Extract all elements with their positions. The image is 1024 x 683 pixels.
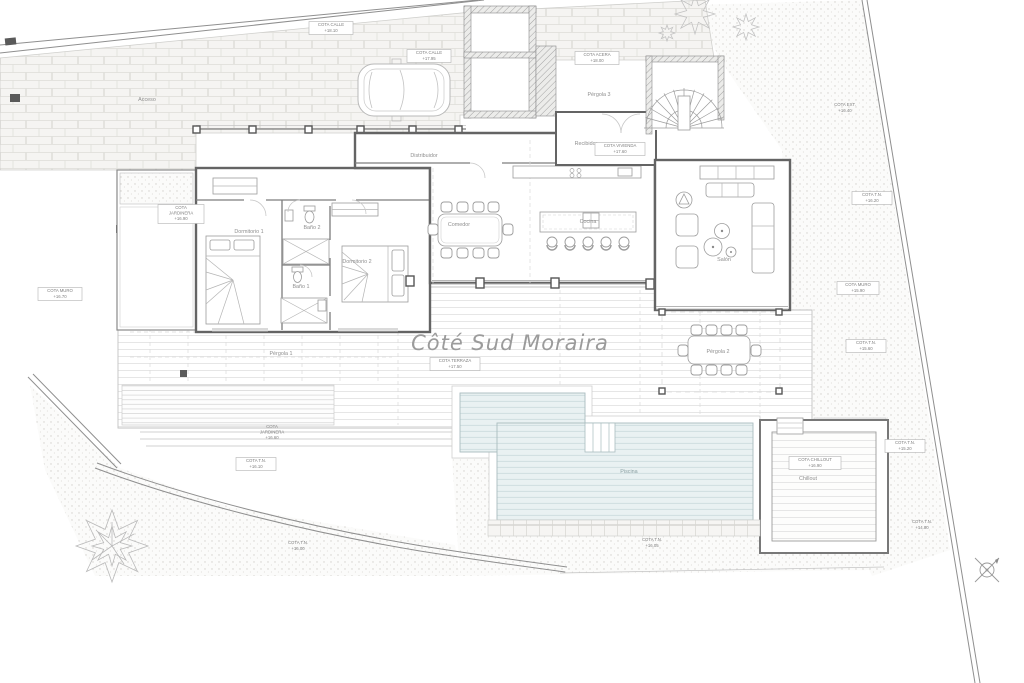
- svg-text:COTA: COTA: [175, 205, 187, 210]
- cota-muro-e: COTA MURO+15.90: [837, 282, 879, 295]
- kitchen-sink: [618, 168, 632, 176]
- cota-tn-e: COTA T.N.+16.20: [852, 192, 892, 205]
- room-label-bano2: Baño 2: [303, 225, 320, 231]
- north-arrow-icon: [975, 558, 999, 582]
- sink-1: [285, 210, 293, 221]
- room-label-dormitorio1: Dormitorio 1: [234, 229, 263, 235]
- room-label-salon: Salón: [717, 257, 731, 263]
- cota-tn-e2: COTA T.N.+15.60: [846, 340, 886, 353]
- planter-west: [117, 170, 196, 330]
- room-label-chillout: Chillout: [799, 476, 817, 482]
- media-cabinet: [700, 166, 774, 179]
- room-label-cocina: Cocina: [580, 219, 597, 225]
- floor-plan-canvas: Piscina Chillout: [0, 0, 1024, 683]
- ceiling-fan-icon: [676, 192, 692, 208]
- cota-tn-sw: COTA T.N.+16.10: [236, 458, 276, 471]
- room-label-recibidor: Recibidor: [575, 141, 598, 147]
- svg-text:+18.00: +18.00: [590, 58, 604, 63]
- svg-text:+16.90: +16.90: [174, 216, 188, 221]
- svg-text:+16.00: +16.00: [291, 546, 305, 551]
- cota-acera: COTA ACERA+18.00: [575, 52, 619, 65]
- svg-text:JARDINERA: JARDINERA: [169, 211, 193, 216]
- svg-text:COTA T.N.: COTA T.N.: [862, 192, 882, 197]
- svg-text:COTA TERRAZA: COTA TERRAZA: [439, 358, 472, 363]
- chillout-area: Chillout: [760, 418, 888, 553]
- svg-text:COTA T.N.: COTA T.N.: [895, 440, 915, 445]
- svg-text:COTA CHILLOUT: COTA CHILLOUT: [798, 457, 832, 462]
- room-label-distribuidor: Distribuidor: [410, 153, 437, 159]
- salon: Salón: [655, 160, 790, 310]
- armchair-1: [676, 214, 698, 236]
- svg-text:COTA CALLE: COTA CALLE: [416, 50, 442, 55]
- room-label-dormitorio2: Dormitorio 2: [342, 259, 371, 265]
- bed-2: [342, 246, 408, 302]
- svg-text:COTA: COTA: [266, 424, 278, 429]
- room-label-pergola3: Pérgola 3: [587, 92, 610, 98]
- svg-text:+16.05: +16.05: [645, 543, 659, 548]
- plan-title: Côté Sud Moraira: [411, 331, 609, 355]
- svg-text:COTA MURO: COTA MURO: [47, 288, 73, 293]
- room-label-pergola1: Pérgola 1: [269, 351, 292, 357]
- svg-text:COTA VIVIENDA: COTA VIVIENDA: [604, 143, 637, 148]
- cota-tn-se: COTA T.N.+15.20: [885, 440, 925, 453]
- floor-plan-page: Piscina Chillout: [0, 0, 1024, 683]
- svg-text:+15.90: +15.90: [851, 288, 865, 293]
- cota-vivienda: COTA VIVIENDA+17.60: [595, 143, 645, 156]
- svg-text:JARDINERA: JARDINERA: [260, 430, 284, 435]
- svg-text:+16.90: +16.90: [808, 463, 822, 468]
- staircase: [644, 56, 724, 134]
- svg-text:+18.10: +18.10: [324, 28, 338, 33]
- svg-text:+16.60: +16.60: [265, 435, 279, 440]
- shower-1: [283, 239, 329, 264]
- svg-text:+16.10: +16.10: [249, 464, 263, 469]
- svg-text:COTA MURO: COTA MURO: [845, 282, 871, 287]
- toilet-1: [304, 206, 315, 223]
- cota-chillout: COTA CHILLOUT+16.90: [789, 457, 841, 470]
- cota-terraza: COTA TERRAZA+17.50: [430, 358, 480, 371]
- car: [358, 59, 450, 121]
- svg-text:COTA CALLE: COTA CALLE: [318, 22, 344, 27]
- svg-text:+16.40: +16.40: [838, 108, 852, 113]
- cota-street-b: COTA CALLE+17.95: [407, 50, 451, 63]
- svg-text:+17.50: +17.50: [448, 364, 462, 369]
- terrace-steps-left: [122, 385, 334, 425]
- svg-text:COTA T.N.: COTA T.N.: [246, 458, 266, 463]
- cota-muro-w: COTA MURO+16.70: [38, 288, 82, 301]
- sink-2: [318, 300, 326, 311]
- room-label-comedor: Comedor: [448, 222, 470, 228]
- svg-text:+15.60: +15.60: [859, 346, 873, 351]
- paving-course: [488, 520, 760, 536]
- room-label-bano1: Baño 1: [292, 284, 309, 290]
- svg-text:+17.95: +17.95: [422, 56, 436, 61]
- recibidor: Recibidor: [556, 112, 656, 165]
- armchair-2: [676, 246, 698, 268]
- svg-text:+17.60: +17.60: [613, 149, 627, 154]
- cota-street-a: COTA CALLE+18.10: [309, 22, 353, 35]
- svg-text:COTA EXT.: COTA EXT.: [834, 102, 856, 107]
- svg-text:COTA T.N.: COTA T.N.: [856, 340, 876, 345]
- bed-1: [206, 236, 260, 324]
- chillout-steps: [777, 418, 803, 434]
- svg-text:COTA T.N.: COTA T.N.: [912, 519, 932, 524]
- bedroom-wing: Dormitorio 1 Baño 2 Dormitorio 2 Baño 1: [196, 168, 430, 332]
- svg-text:+16.70: +16.70: [53, 294, 67, 299]
- svg-text:COTA T.N.: COTA T.N.: [642, 537, 662, 542]
- label-acceso: Acceso: [138, 97, 156, 103]
- svg-text:+16.20: +16.20: [865, 198, 879, 203]
- svg-text:+15.20: +15.20: [898, 446, 912, 451]
- svg-text:COTA T.N.: COTA T.N.: [288, 540, 308, 545]
- room-label-piscina: Piscina: [620, 469, 637, 475]
- room-label-pergola2: Pérgola 2: [706, 349, 729, 355]
- svg-text:COTA ACERA: COTA ACERA: [583, 52, 610, 57]
- cota-jardinera-w: COTAJARDINERA+16.90: [158, 205, 204, 224]
- svg-text:+14.80: +14.80: [915, 525, 929, 530]
- pool-steps: [585, 423, 615, 452]
